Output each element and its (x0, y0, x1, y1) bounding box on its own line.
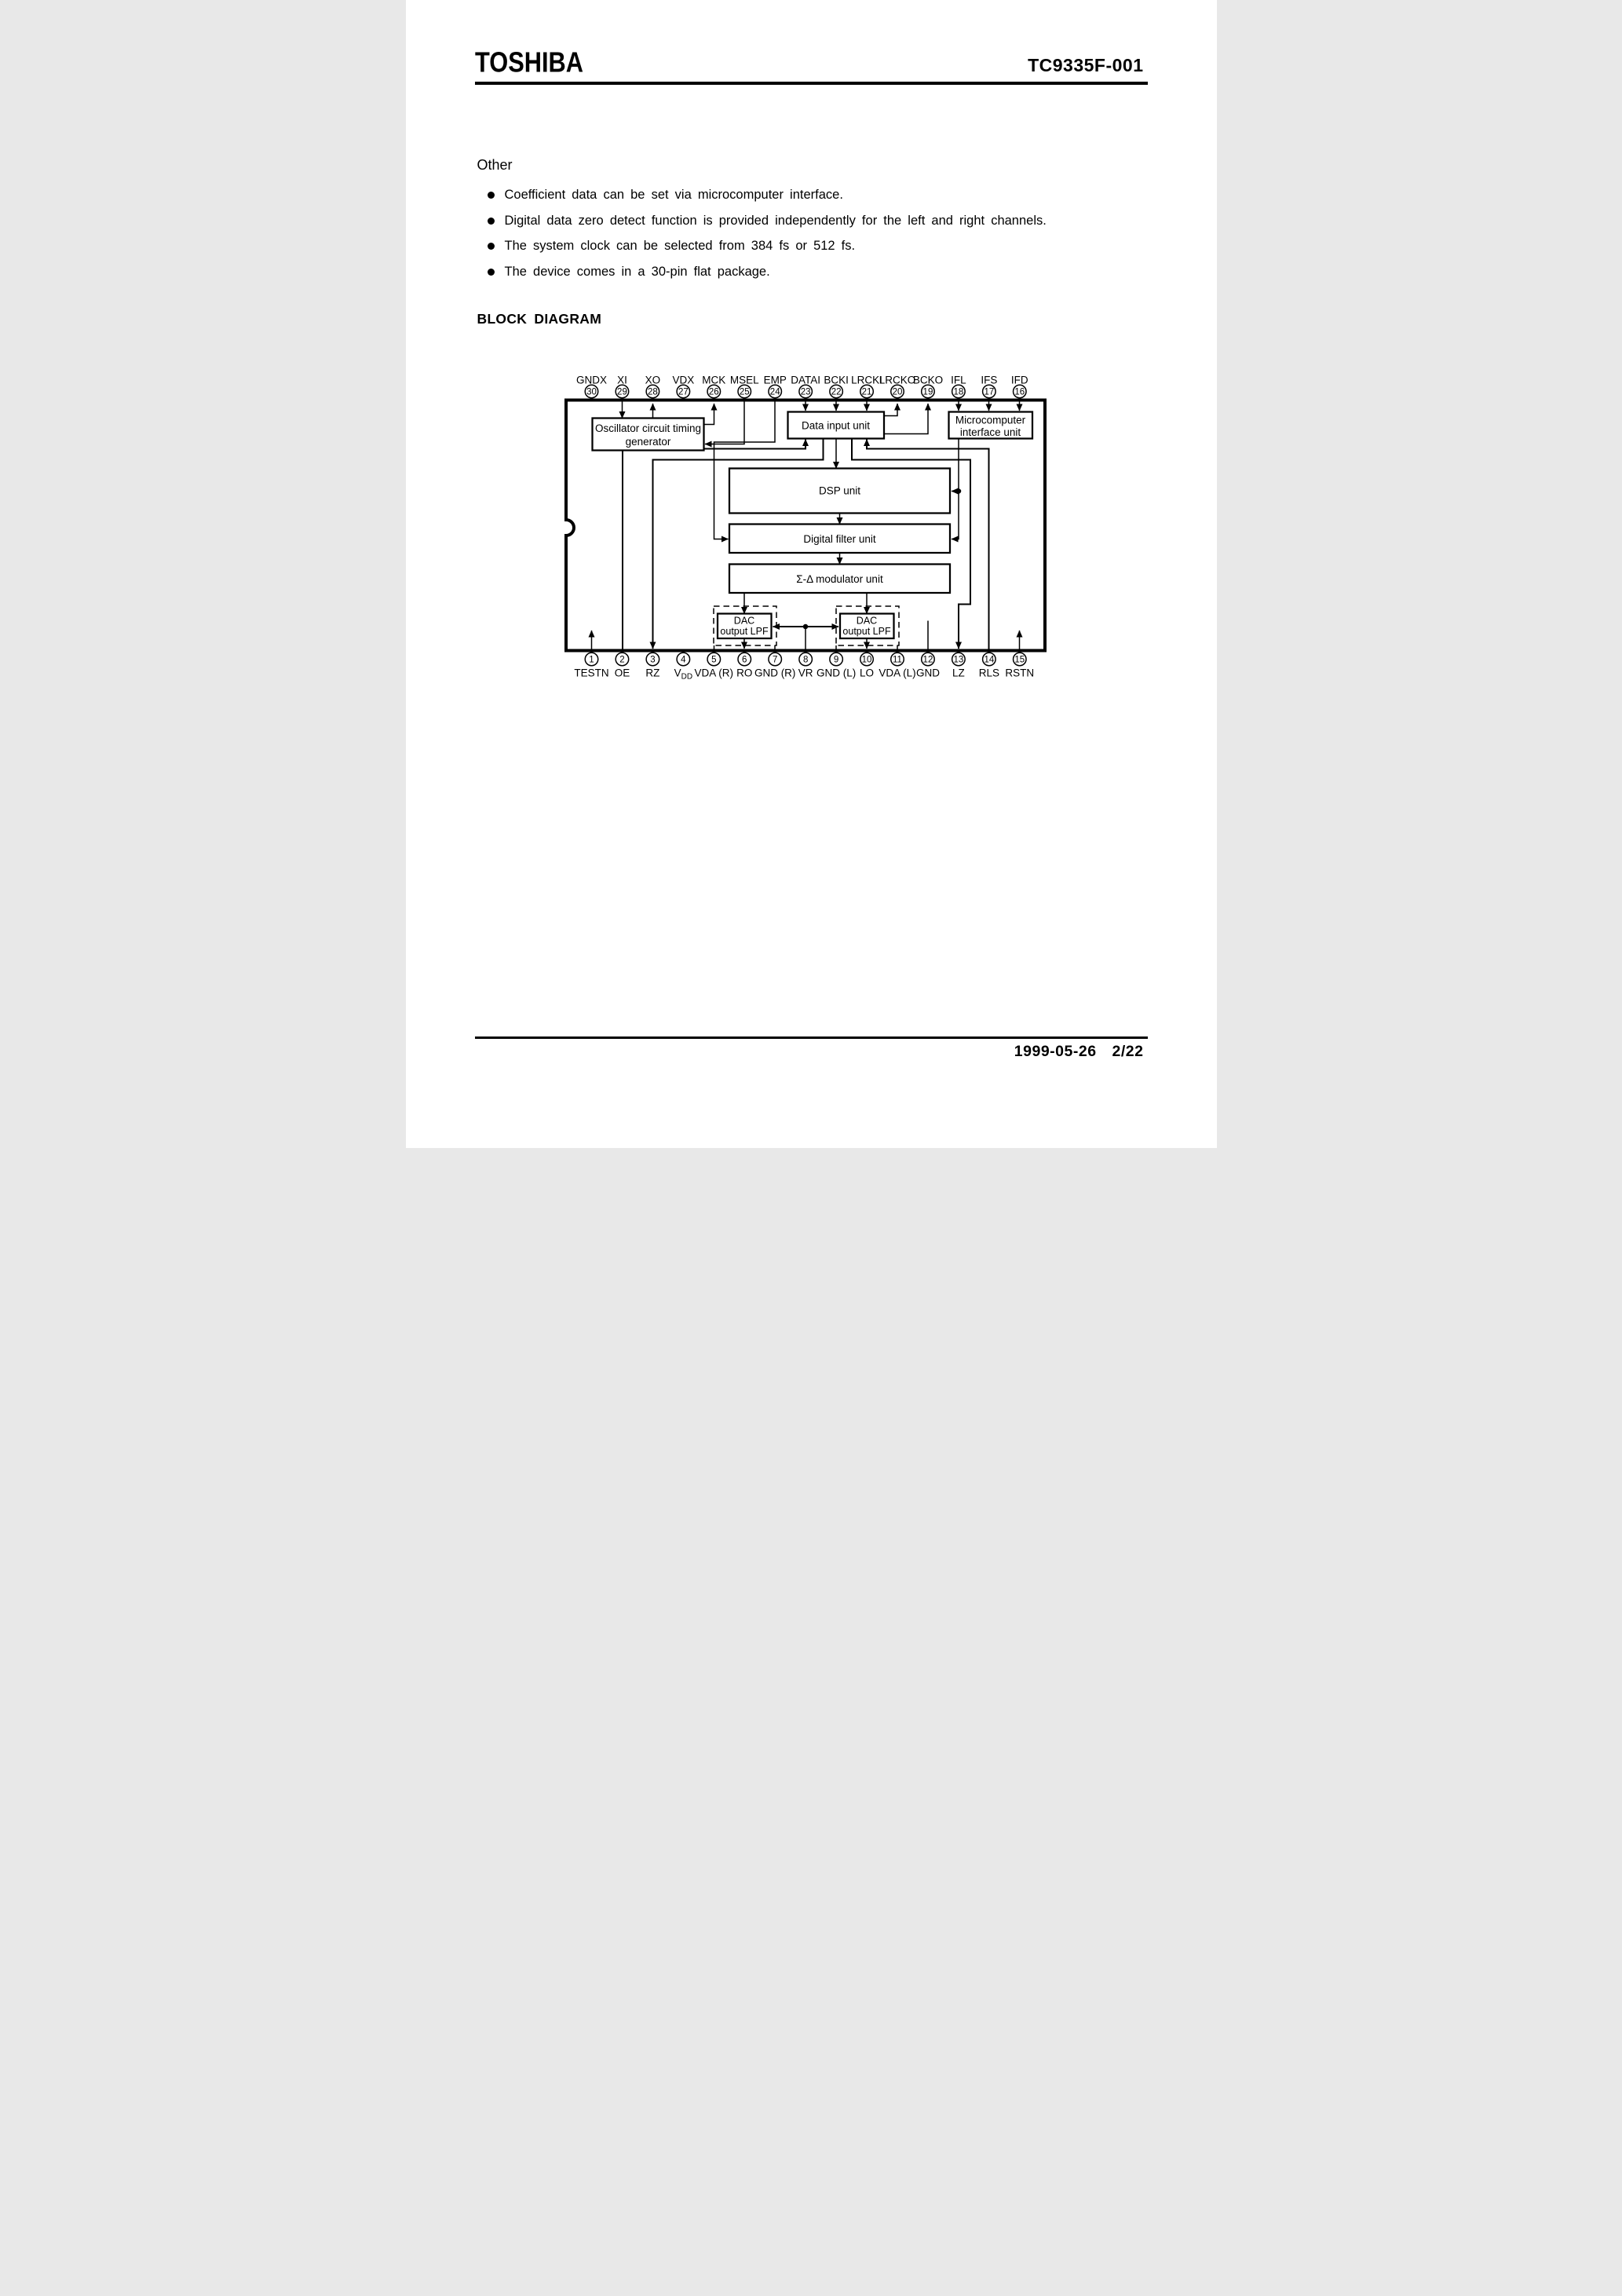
bullet-text: The system clock can be selected from 38… (505, 239, 856, 253)
wire-data-input-to-bcko (884, 404, 928, 434)
pin-number: 19 (922, 388, 933, 397)
pin-4: 4VDD (674, 653, 692, 681)
pin-7: 7GND (R) (754, 653, 795, 678)
pin-15: 15RSTN (1005, 653, 1034, 678)
pin-8: 8VR (798, 653, 813, 678)
sigma-delta-label: Σ-Δ modulator unit (796, 573, 883, 585)
bullet-item: Coefficient data can be set via microcom… (477, 182, 1105, 208)
pin-label: VR (798, 667, 813, 679)
bullet-dot-icon (488, 269, 495, 276)
pin-3: 3RZ (645, 653, 659, 678)
bullet-item: The device comes in a 30-pin flat packag… (477, 259, 1105, 285)
pin-number: 24 (769, 388, 780, 397)
part-number: TC9335F-001 (1028, 55, 1143, 76)
microcomputer-label-line2: interface unit (959, 426, 1021, 438)
pin-26: 26MCK (702, 375, 725, 398)
pin-label: VDA (L) (879, 667, 915, 679)
pin-label: EMP (763, 375, 786, 386)
bullet-text: Digital data zero detect function is pro… (505, 214, 1047, 228)
pin-number: 20 (892, 388, 902, 397)
pin-number: 16 (1014, 388, 1025, 397)
pin-number: 1 (589, 656, 594, 665)
pin-number: 2 (619, 656, 624, 665)
digital-filter-label: Digital filter unit (803, 533, 876, 545)
pin-label: RO (736, 667, 752, 679)
pin-20: 20LRCKO (879, 375, 915, 398)
pin-label: RSTN (1005, 667, 1034, 679)
block-diagram: Oscillator circuit timing generator Data… (555, 360, 1061, 700)
pin-number: 26 (708, 388, 718, 397)
dac-r-label-line2: output LPF (720, 626, 769, 637)
junction-dot (802, 624, 808, 630)
pin-label: XO (645, 375, 660, 386)
pin-label: BCKO (912, 375, 942, 386)
data-input-label: Data input unit (801, 420, 869, 432)
pin-number: 11 (893, 656, 902, 665)
pin-label: GND (L) (816, 667, 855, 679)
pin-number: 28 (648, 388, 658, 397)
feature-bullet-list: Coefficient data can be set via microcom… (477, 182, 1105, 284)
pin-number: 30 (586, 388, 597, 397)
pin-label: VDA (R) (694, 667, 733, 679)
bottom-pin-row: 1TESTN2OE3RZ4VDD5VDA (R)6RO7GND (R)8VR9G… (574, 653, 1034, 681)
junction-dot (955, 488, 961, 494)
pin-label: IFD (1010, 375, 1028, 386)
pin-label: BCKI (824, 375, 849, 386)
dsp-label: DSP unit (818, 485, 860, 497)
pin-22: 22BCKI (824, 375, 849, 398)
pin-label: GND (915, 667, 939, 679)
bullet-item: Digital data zero detect function is pro… (477, 208, 1105, 234)
dac-l-label-line2: output LPF (842, 626, 891, 637)
pin-number: 23 (800, 388, 810, 397)
pin-12: 12GND (915, 653, 939, 678)
dac-l-label-line1: DAC (856, 616, 876, 627)
pin-label: LRCKI (851, 375, 882, 386)
bullet-dot-icon (488, 218, 495, 225)
pin-label: DATAI (791, 375, 820, 386)
pin-label: LZ (952, 667, 965, 679)
pin-label: LO (860, 667, 874, 679)
pin-number: 13 (953, 656, 963, 665)
pin-label: IFS (981, 375, 997, 386)
footer-date: 1999-05-26 (1014, 1043, 1097, 1060)
pin-number: 17 (984, 388, 994, 397)
bullet-dot-icon (488, 243, 495, 250)
pin-number: 12 (922, 656, 933, 665)
pin-number: 18 (953, 388, 963, 397)
bullet-text: Coefficient data can be set via microcom… (505, 188, 843, 202)
pin-label: XI (617, 375, 627, 386)
top-pin-row: 30GNDX29XI28XO27VDX26MCK25MSEL24EMP23DAT… (575, 375, 1028, 398)
pin-number: 7 (772, 656, 776, 665)
pin-30: 30GNDX (575, 375, 606, 398)
pin-14: 14RLS (978, 653, 999, 678)
header-rule (475, 82, 1148, 85)
pin-label: GND (R) (754, 667, 795, 679)
wire-oscillator-to-mck (703, 404, 714, 425)
bullet-text: The device comes in a 30-pin flat packag… (505, 265, 770, 279)
pin-label: MCK (702, 375, 725, 386)
bullet-item: The system clock can be selected from 38… (477, 233, 1105, 259)
pin-label: RZ (645, 667, 659, 679)
pin-label: OE (614, 667, 630, 679)
pin-10: 10LO (860, 653, 874, 678)
wire-microcomputer-to-digital-filter (952, 439, 959, 539)
pin-number: 25 (739, 388, 749, 397)
pin-number: 14 (984, 656, 994, 665)
pin-number: 15 (1014, 656, 1025, 665)
diagram-blocks: Oscillator circuit timing generator Data… (592, 412, 1032, 646)
pin-number: 9 (833, 656, 838, 665)
pin-1: 1TESTN (574, 653, 608, 678)
pin-19: 19BCKO (912, 375, 942, 398)
pin-29: 29XI (616, 375, 629, 398)
pin-number: 3 (650, 656, 655, 665)
pin-25: 25MSEL (729, 375, 758, 398)
pin-28: 28XO (645, 375, 660, 398)
pin-number: 6 (742, 656, 747, 665)
pin-label: IFL (951, 375, 966, 386)
block-diagram-heading: BLOCK DIAGRAM (477, 311, 602, 327)
footer-page-number: 2/22 (1112, 1043, 1144, 1060)
pin-label: LRCKO (879, 375, 915, 386)
pin-label: VDX (672, 375, 694, 386)
pin-number: 5 (711, 656, 716, 665)
pin-number: 10 (861, 656, 871, 665)
pin-16: 16IFD (1010, 375, 1028, 398)
pin-23: 23DATAI (791, 375, 820, 398)
pin-11: 11VDA (L) (879, 653, 915, 678)
oscillator-label-line1: Oscillator circuit timing (594, 422, 700, 434)
pin-9: 9GND (L) (816, 653, 855, 678)
pin-number: 21 (861, 388, 871, 397)
pin-18: 18IFL (951, 375, 966, 398)
wire-data-input-to-lrcko (884, 404, 897, 416)
pin-24: 24EMP (763, 375, 786, 398)
toshiba-logo: TOSHIBA (475, 47, 583, 79)
footer-rule (475, 1036, 1148, 1039)
pin-number: 8 (802, 656, 807, 665)
oscillator-label-line2: generator (625, 436, 670, 448)
pin-21: 21LRCKI (851, 375, 882, 398)
wire-msel-to-oscillator (705, 400, 744, 444)
pin-label: VDD (674, 667, 692, 682)
pin-label: GNDX (575, 375, 606, 386)
pin-number: 4 (681, 656, 686, 665)
pin-6: 6RO (736, 653, 752, 678)
pin-label: RLS (978, 667, 999, 679)
pin-17: 17IFS (981, 375, 997, 398)
pin-13: 13LZ (952, 653, 965, 678)
pin-label: MSEL (729, 375, 758, 386)
pin-5: 5VDA (R) (694, 653, 733, 678)
bullet-dot-icon (488, 192, 495, 199)
pin-label: TESTN (574, 667, 608, 679)
other-section-heading: Other (477, 157, 513, 174)
datasheet-page: TOSHIBA TC9335F-001 Other Coefficient da… (406, 0, 1217, 1148)
microcomputer-label-line1: Microcomputer (955, 415, 1025, 426)
pin-number: 27 (678, 388, 688, 397)
pin-number: 22 (831, 388, 841, 397)
footer: 1999-05-262/22 (1014, 1043, 1144, 1061)
dac-r-label-line1: DAC (733, 616, 754, 627)
pin-27: 27VDX (672, 375, 694, 398)
pin-number: 29 (617, 388, 627, 397)
pin-2: 2OE (614, 653, 630, 678)
